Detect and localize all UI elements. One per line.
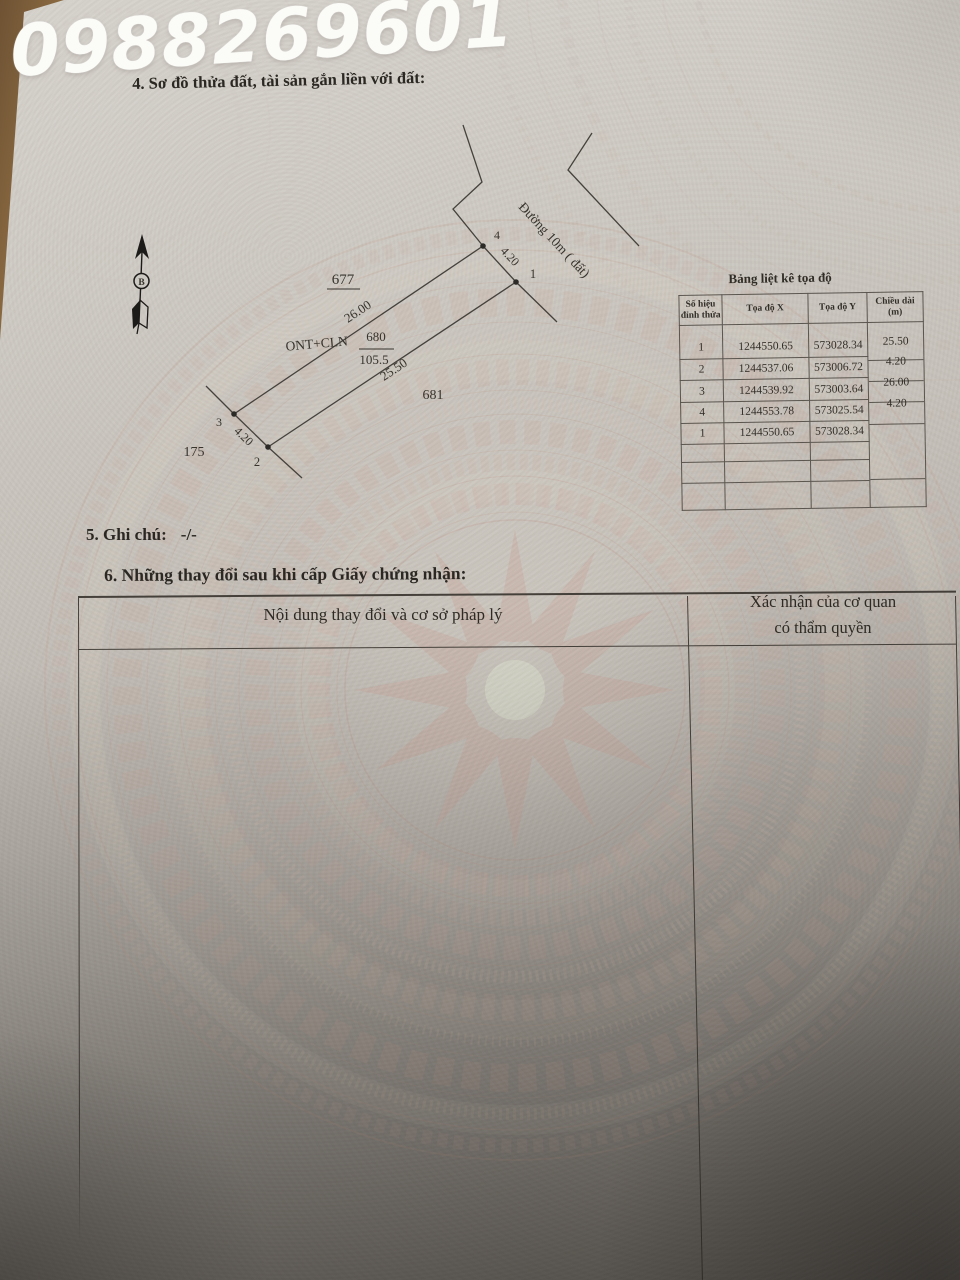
section5-note: 5. Ghi chú:-/- <box>86 525 197 545</box>
y-cell: 573025.54 <box>810 399 869 421</box>
vertex-3-label: 3 <box>216 415 222 429</box>
changes-col2-header: Xác nhận của cơ quan có thẩm quyền <box>690 589 956 641</box>
length-value: 26.00 <box>869 376 924 389</box>
section5-label: 5. Ghi chú: <box>86 525 167 544</box>
section5-value: -/- <box>181 525 197 544</box>
length-value: 25.50 <box>868 335 923 348</box>
road-label: Đường 10m ( đất) <box>516 199 593 280</box>
road-east-edge-line <box>568 133 639 246</box>
parcel-680-label: 680 <box>366 329 386 344</box>
changes-table: Nội dung thay đổi và cơ sở pháp lý Xác n… <box>78 591 956 1280</box>
coordinate-table: Số hiệu đỉnh thửa Tọa độ X Tọa độ Y Chiề… <box>678 291 926 511</box>
length-value: 4.20 <box>868 355 923 368</box>
area-680-label: 105.5 <box>359 352 388 367</box>
y-cell: 573028.34 <box>808 322 868 357</box>
north-boundary-line <box>234 246 557 414</box>
col-header-y: Tọa độ Y <box>808 292 867 323</box>
parcel-boundary-lines <box>206 125 639 478</box>
x-cell: 1244537.06 <box>723 357 809 379</box>
north-arrow-icon: B <box>132 234 149 334</box>
x-cell: 1244550.65 <box>722 323 809 358</box>
x-cell: 1244539.92 <box>723 378 809 401</box>
north-b-label: B <box>138 278 145 288</box>
length-column: 25.50 4.20 26.00 4.20 <box>867 322 926 508</box>
road-west-edge-line <box>453 125 483 246</box>
length-value: 4.20 <box>869 397 924 410</box>
parcel-175-label: 175 <box>184 445 205 460</box>
land-use-label: ONT+CLN <box>285 333 349 353</box>
edge-2-3-length-label: 4.20 <box>231 424 256 449</box>
changes-col1-header: Nội dung thay đổi và cơ sở pháp lý <box>98 605 668 625</box>
col-header-length: Chiều dài (m) <box>867 292 923 323</box>
parcel-681-label: 681 <box>423 388 444 403</box>
changes-col2-header-line2: có thẩm quyền <box>690 615 956 641</box>
vertex-cell: 4 <box>681 402 724 424</box>
vertex-cell: 1 <box>681 423 724 445</box>
x-cell: 1244550.65 <box>724 421 810 443</box>
col-header-vertex: Số hiệu đỉnh thửa <box>679 295 722 326</box>
changes-table-column-divider <box>687 596 703 1280</box>
vertex-dots <box>231 243 519 450</box>
vertex-cell: 2 <box>680 359 723 381</box>
x-cell: 1244553.78 <box>724 400 810 422</box>
vertex-cell: 1 <box>679 325 723 360</box>
vertex-dot <box>480 243 486 249</box>
y-cell: 573003.64 <box>809 377 868 400</box>
y-cell: 573028.34 <box>810 420 869 442</box>
vertex-cell: 3 <box>680 380 723 403</box>
changes-col2-header-line1: Xác nhận của cơ quan <box>690 589 956 615</box>
coordinate-table-block: Bảng liệt kê tọa độ Số hiệu đỉnh thửa Tọ… <box>678 268 932 511</box>
vertex-2-label: 2 <box>254 455 260 469</box>
vertex-dot <box>231 411 237 417</box>
section6-heading: 6. Những thay đổi sau khi cấp Giấy chứng… <box>104 563 466 586</box>
vertex-4-label: 4 <box>494 228 500 242</box>
changes-table-header-underline <box>78 644 956 651</box>
parcel-677-label: 677 <box>332 272 355 288</box>
y-cell: 573006.72 <box>809 356 868 378</box>
vertex-dot <box>265 444 271 450</box>
changes-table-left-border <box>78 596 81 1244</box>
table-row: 1 1244550.65 573028.34 25.50 4.20 26.00 … <box>679 322 924 360</box>
vertex-dot <box>513 279 519 285</box>
coordinate-table-title: Bảng liệt kê tọa độ <box>700 269 860 288</box>
vertex-1-label: 1 <box>530 267 536 281</box>
document-photo: B 677 Đường 10m ( đất) 4 4.20 1 26.00 ON… <box>0 0 960 1280</box>
edge-3-4-length-label: 26.00 <box>341 297 374 326</box>
col-header-x: Tọa độ X <box>722 293 808 324</box>
edge-4-1-length-label: 4.20 <box>498 244 523 269</box>
